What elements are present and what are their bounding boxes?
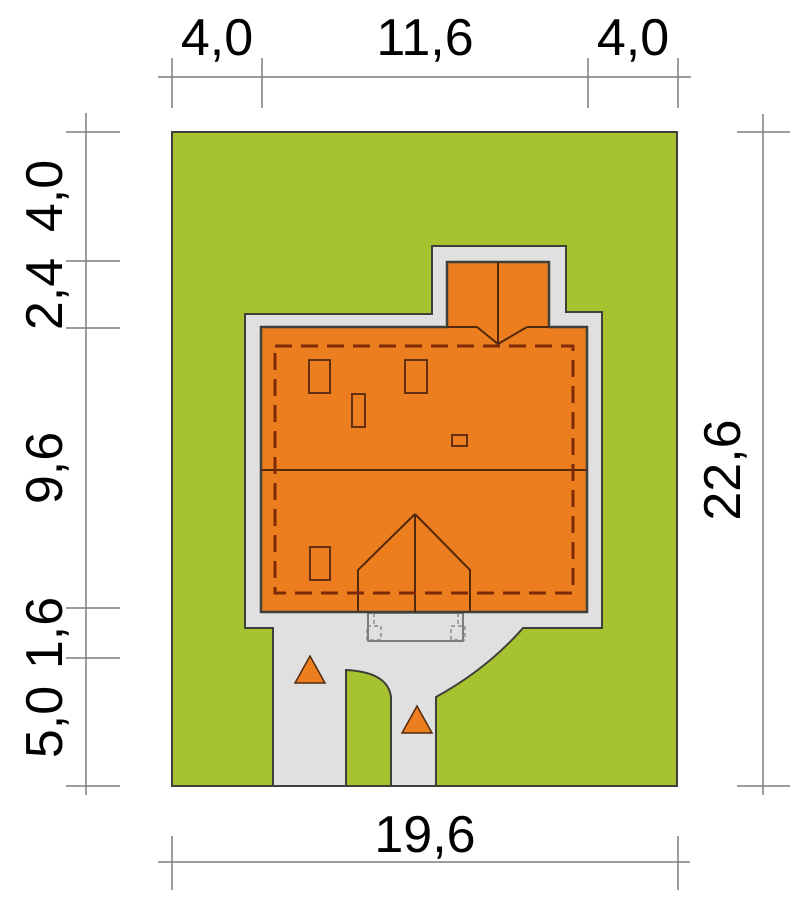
- dim-label: 11,6: [376, 9, 473, 67]
- site-plan: 4,0 11,6 4,0 4,0 2,4 9,6 1,6 5,0 22,6 19…: [0, 0, 800, 902]
- dimension-bottom: 19,6: [158, 806, 690, 890]
- dimension-left: 4,0 2,4 9,6 1,6 5,0: [16, 113, 120, 795]
- dim-label: 4,0: [181, 9, 253, 67]
- dim-label: 1,6: [16, 597, 74, 669]
- site-plan-drawing: 4,0 11,6 4,0 4,0 2,4 9,6 1,6 5,0 22,6 19…: [0, 0, 800, 902]
- dim-label: 22,6: [694, 419, 752, 520]
- dim-label: 9,6: [16, 432, 74, 504]
- dim-label: 2,4: [16, 258, 74, 330]
- dimension-top: 4,0 11,6 4,0: [158, 9, 691, 108]
- dim-label: 4,0: [16, 160, 74, 232]
- dim-left-ticks: [66, 132, 120, 786]
- dim-label: 4,0: [597, 9, 669, 67]
- steps-slab: [368, 613, 463, 641]
- dim-label: 19,6: [374, 806, 475, 864]
- dim-label: 5,0: [16, 686, 74, 758]
- entrance-steps: [367, 613, 465, 641]
- dimension-right: 22,6: [694, 114, 790, 795]
